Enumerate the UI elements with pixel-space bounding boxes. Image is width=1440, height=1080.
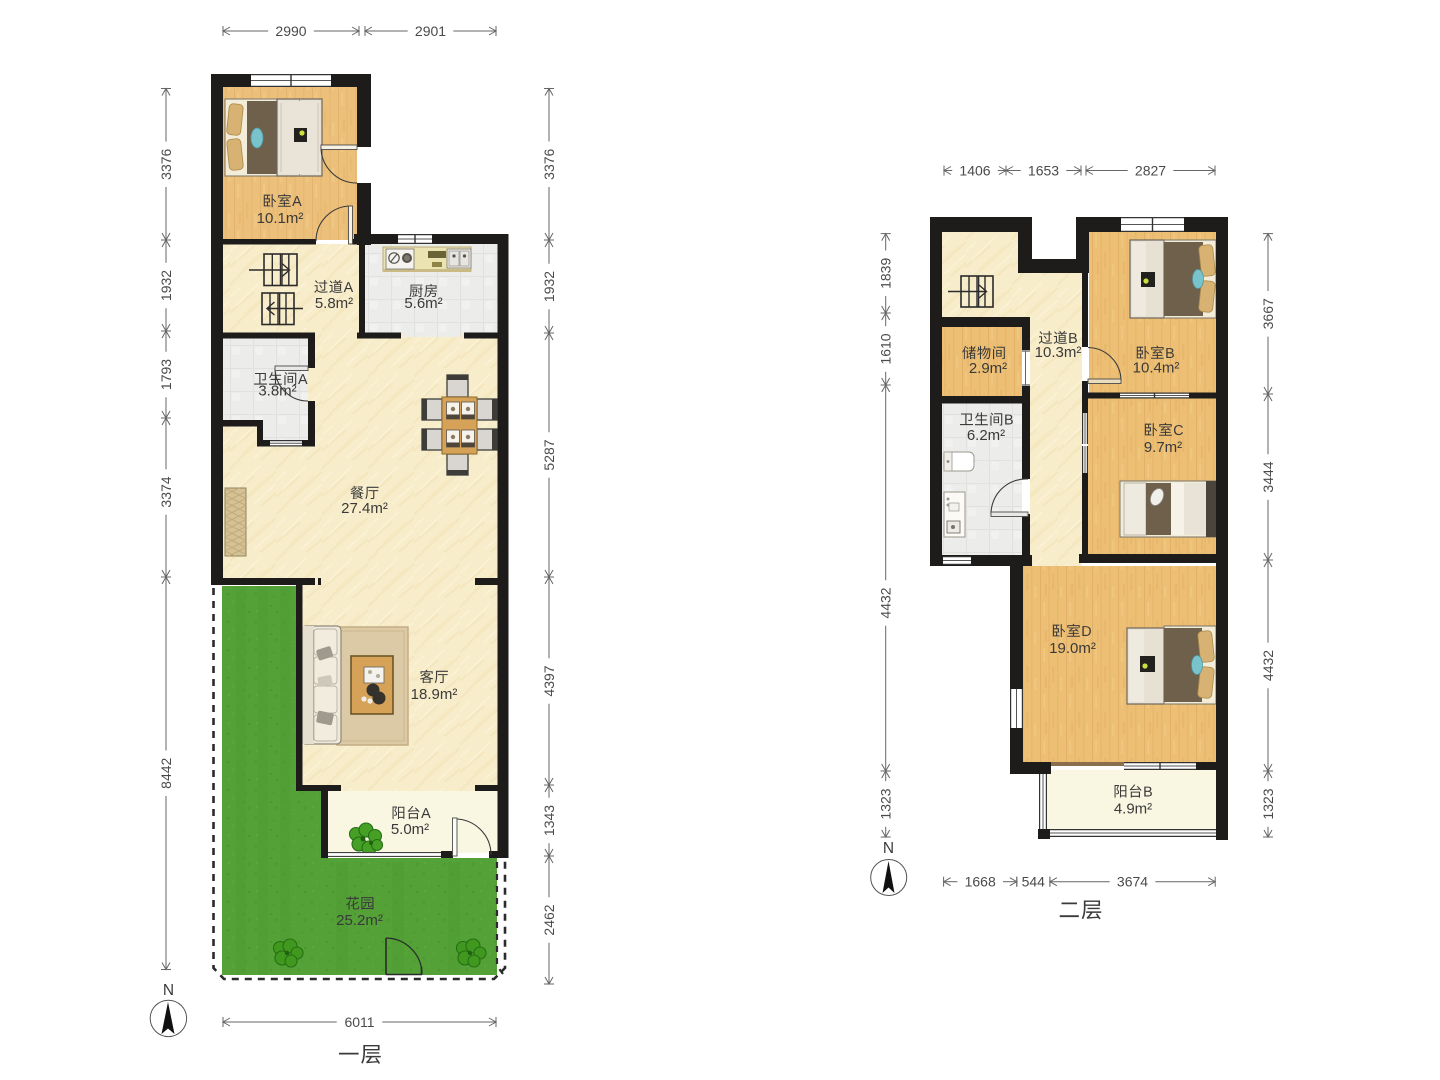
svg-text:1653: 1653 <box>1028 163 1059 179</box>
svg-text:1793: 1793 <box>158 359 174 390</box>
svg-text:N: N <box>883 840 894 857</box>
svg-text:3667: 3667 <box>1260 298 1276 329</box>
svg-text:2462: 2462 <box>541 904 557 935</box>
svg-text:1668: 1668 <box>965 874 996 890</box>
svg-text:6.2m²: 6.2m² <box>967 427 1005 444</box>
svg-text:1406: 1406 <box>959 163 990 179</box>
svg-text:3444: 3444 <box>1260 461 1276 492</box>
svg-text:10.1m²: 10.1m² <box>257 210 304 227</box>
svg-text:1839: 1839 <box>878 258 894 289</box>
svg-text:1610: 1610 <box>878 333 894 364</box>
svg-text:1932: 1932 <box>541 271 557 302</box>
svg-text:3674: 3674 <box>1117 874 1148 890</box>
svg-text:5287: 5287 <box>541 439 557 470</box>
svg-text:9.7m²: 9.7m² <box>1144 439 1182 456</box>
svg-text:N: N <box>163 982 174 999</box>
svg-text:5.6m²: 5.6m² <box>404 295 442 312</box>
svg-text:5.8m²: 5.8m² <box>315 295 353 312</box>
svg-text:1932: 1932 <box>158 270 174 301</box>
svg-text:5.0m²: 5.0m² <box>391 821 429 838</box>
svg-text:4.9m²: 4.9m² <box>1114 801 1152 818</box>
svg-text:2901: 2901 <box>415 23 446 39</box>
svg-text:10.3m²: 10.3m² <box>1035 344 1082 361</box>
svg-text:2990: 2990 <box>275 23 306 39</box>
svg-text:4432: 4432 <box>1260 650 1276 681</box>
svg-text:2.9m²: 2.9m² <box>969 360 1007 377</box>
svg-text:1323: 1323 <box>1260 788 1276 819</box>
svg-text:1323: 1323 <box>878 788 894 819</box>
svg-text:544: 544 <box>1022 874 1046 890</box>
svg-text:19.0m²: 19.0m² <box>1049 640 1096 657</box>
svg-text:25.2m²: 25.2m² <box>336 912 383 929</box>
svg-text:27.4m²: 27.4m² <box>341 500 388 517</box>
svg-text:3376: 3376 <box>158 148 174 179</box>
svg-text:3376: 3376 <box>541 148 557 179</box>
svg-text:4397: 4397 <box>541 665 557 696</box>
svg-text:2827: 2827 <box>1135 163 1166 179</box>
svg-text:18.9m²: 18.9m² <box>411 686 458 703</box>
svg-text:3.8m²: 3.8m² <box>258 383 296 400</box>
svg-text:1343: 1343 <box>541 805 557 836</box>
svg-text:8442: 8442 <box>158 757 174 788</box>
svg-text:3374: 3374 <box>158 476 174 507</box>
svg-text:4432: 4432 <box>878 587 894 618</box>
svg-text:6011: 6011 <box>344 1014 374 1030</box>
svg-text:10.4m²: 10.4m² <box>1133 360 1180 377</box>
